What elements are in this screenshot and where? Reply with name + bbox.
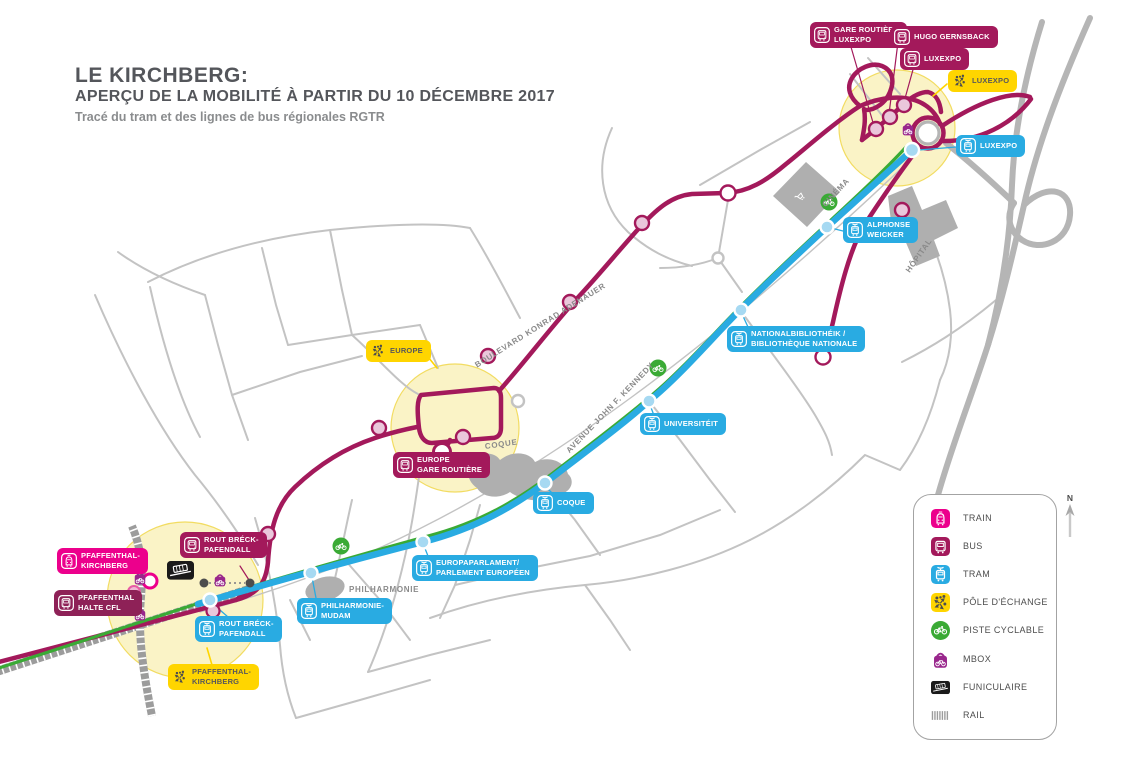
bus-icon	[814, 27, 830, 43]
tram-icon	[644, 416, 660, 432]
interchange-arrows-icon	[172, 669, 188, 685]
street-label-philharmonie: PHILHARMONIE	[349, 586, 419, 594]
tram-icon	[199, 621, 215, 637]
station-badge-label: ROUT BRÉCK- PAFENDALL	[219, 619, 274, 639]
station-badge-luxexpo-tram[interactable]: LUXEXPO	[956, 135, 1025, 157]
tram-icon	[931, 565, 950, 584]
interchange-zones	[107, 70, 955, 678]
legend-item-piste-cyclable: PISTE CYCLABLE	[914, 617, 1056, 645]
bike-locker-icon	[903, 124, 914, 135]
train-icon	[61, 553, 77, 569]
station-badge-luxexpo-pole[interactable]: LUXEXPO	[948, 70, 1017, 92]
bus-stops	[261, 98, 911, 541]
page-tagline: Tracé du tram et des lignes de bus régio…	[75, 108, 555, 127]
station-badge-rout-breck-bus[interactable]: ROUT BRÉCK- PAFENDALL	[180, 532, 267, 558]
tram-icon	[416, 560, 432, 576]
station-badge-europe-pole[interactable]: EUROPE	[366, 340, 431, 362]
legend-label: RAIL	[963, 711, 985, 720]
station-badge-label: ROUT BRÉCK- PAFENDALL	[204, 535, 259, 555]
station-badge-label: PFAFFENTHAL- KIRCHBERG	[192, 667, 251, 687]
station-badge-universiteit[interactable]: UNIVERSITÉIT	[640, 413, 726, 435]
legend-label: TRAM	[963, 570, 990, 579]
legend-item-tram: TRAM	[914, 560, 1056, 588]
station-badge-label: COQUE	[557, 498, 586, 508]
station-badge-label: UNIVERSITÉIT	[664, 419, 718, 429]
station-badge-alphonse-weicker[interactable]: ALPHONSE WEICKER	[843, 217, 918, 243]
legend-label: TRAIN	[963, 514, 992, 523]
legend-label: FUNICULAIRE	[963, 683, 1027, 692]
station-badge-label: HUGO GERNSBACK	[914, 32, 990, 42]
station-badge-pfaffenthal-kirchberg-pole[interactable]: PFAFFENTHAL- KIRCHBERG	[168, 664, 259, 690]
bus-icon	[397, 457, 413, 473]
legend-item-train: TRAIN	[914, 504, 1056, 532]
station-badge-pfaffenthal-halte-cfl[interactable]: PFAFFENTHAL HALTE CFL	[54, 590, 142, 616]
bus-icon	[904, 51, 920, 67]
train-icon	[58, 595, 74, 611]
funicular-icon	[931, 678, 950, 697]
station-badge-europaparlament[interactable]: EUROPAPARLAMENT/ PARLEMENT EUROPÉEN	[412, 555, 538, 581]
north-indicator: N	[1062, 494, 1078, 538]
funicular-icon	[167, 561, 194, 580]
station-badge-philharmonie-mudam[interactable]: PHILHARMONIE- MUDAM	[297, 598, 392, 624]
rail-hatch-icon	[931, 706, 950, 725]
legend-item-mbox: MBOX	[914, 645, 1056, 673]
legend-label: PÔLE D'ÉCHANGE	[963, 598, 1048, 607]
train-icon	[931, 509, 950, 528]
station-badge-label: EUROPAPARLAMENT/ PARLEMENT EUROPÉEN	[436, 558, 530, 578]
bicycle-icon	[931, 621, 950, 640]
station-badge-label: PFAFFENTHAL- KIRCHBERG	[81, 551, 140, 571]
north-arrow-icon	[1064, 504, 1076, 538]
mini-roundabout	[713, 253, 724, 264]
interchange-arrows-icon	[931, 593, 950, 612]
station-badge-label: NATIONALBIBLIOTHÉIK / BIBLIOTHÈQUE NATIO…	[751, 329, 857, 349]
station-badge-bibliotheque[interactable]: NATIONALBIBLIOTHÉIK / BIBLIOTHÈQUE NATIO…	[727, 326, 865, 352]
station-badge-label: PFAFFENTHAL HALTE CFL	[78, 593, 134, 613]
map-legend: TRAIN BUS TRAM PÔLE D'ÉCHANGE PISTE CYCL…	[913, 494, 1057, 740]
bus-icon	[184, 537, 200, 553]
legend-label: MBOX	[963, 655, 991, 664]
motorway	[928, 18, 1090, 568]
station-badge-label: LUXEXPO	[924, 54, 961, 64]
station-badge-label: PHILHARMONIE- MUDAM	[321, 601, 384, 621]
bus-icon	[894, 29, 910, 45]
legend-item-funiculaire: FUNICULAIRE	[914, 673, 1056, 701]
page-title: LE KIRCHBERG:	[75, 64, 555, 87]
legend-label: PISTE CYCLABLE	[963, 626, 1044, 635]
bus-icon	[931, 537, 950, 556]
station-badge-hugo-gernsback[interactable]: HUGO GERNSBACK	[890, 26, 998, 48]
bike-locker-icon	[135, 573, 146, 584]
station-badge-rout-breck-tram[interactable]: ROUT BRÉCK- PAFENDALL	[195, 616, 282, 642]
interchange-arrows-icon	[370, 343, 386, 359]
tram-icon	[847, 222, 863, 238]
station-badge-luxexpo-bus[interactable]: LUXEXPO	[900, 48, 969, 70]
station-badge-label: ALPHONSE WEICKER	[867, 220, 910, 240]
tram-icon	[301, 603, 317, 619]
tram-icon	[537, 495, 553, 511]
mini-roundabout	[512, 395, 524, 407]
station-badge-label: EUROPE GARE ROUTIÈRE	[417, 455, 482, 475]
roundabout	[917, 122, 939, 144]
bike-locker-icon	[931, 650, 950, 669]
legend-label: BUS	[963, 542, 983, 551]
tram-icon	[731, 331, 747, 347]
title-block: LE KIRCHBERG: APERÇU DE LA MOBILITÉ À PA…	[75, 64, 555, 127]
station-badge-label: EUROPE	[390, 346, 423, 356]
page-subtitle: APERÇU DE LA MOBILITÉ À PARTIR DU 10 DÉC…	[75, 87, 555, 108]
station-badge-europe-gare-routiere[interactable]: EUROPE GARE ROUTIÈRE	[393, 452, 490, 478]
legend-item-rail: RAIL	[914, 701, 1056, 729]
station-badge-label: LUXEXPO	[980, 141, 1017, 151]
legend-item-bus: BUS	[914, 532, 1056, 560]
tram-icon	[960, 138, 976, 154]
station-badge-label: LUXEXPO	[972, 76, 1009, 86]
station-badge-coque[interactable]: COQUE	[533, 492, 594, 514]
bike-locker-icon	[215, 575, 226, 586]
legend-item-pole-dechange: PÔLE D'ÉCHANGE	[914, 589, 1056, 617]
station-badge-pfaffenthal-kirchberg-train[interactable]: PFAFFENTHAL- KIRCHBERG	[57, 548, 148, 574]
north-label: N	[1062, 494, 1078, 503]
interchange-arrows-icon	[952, 73, 968, 89]
